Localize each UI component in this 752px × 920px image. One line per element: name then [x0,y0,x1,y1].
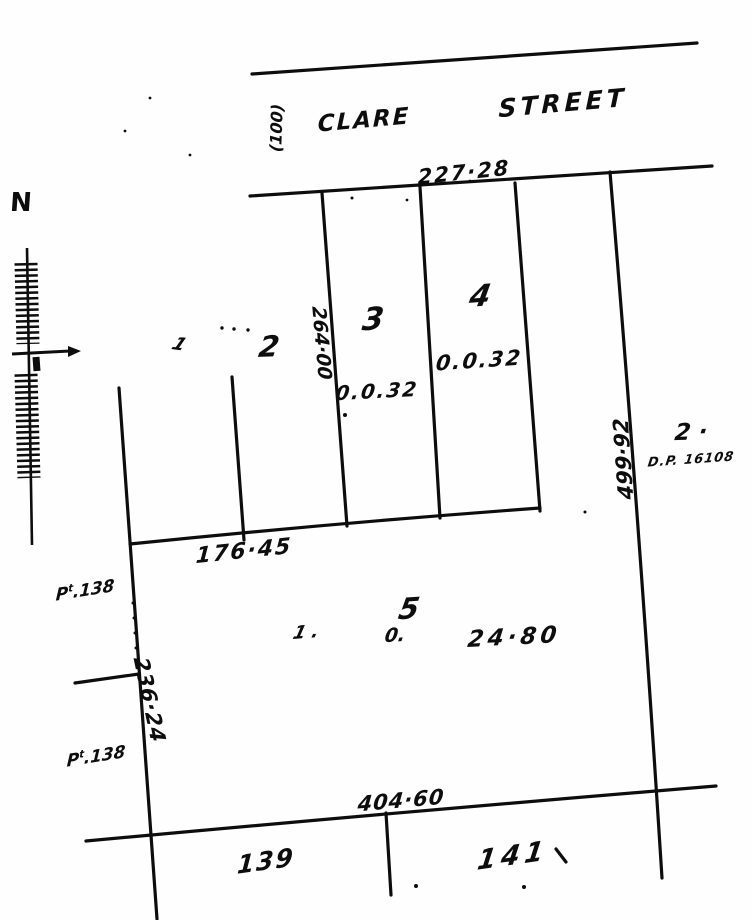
dim-lot-depth: 264·00 [308,306,333,379]
lot-5-area-acres: 1 . [291,623,321,643]
north-arrow-crossbar [12,351,70,354]
plan-linework [0,0,752,920]
lot-5-area-perches: 24·80 [466,624,561,652]
dim-east-side: 499·92 [611,418,638,500]
east-boundary-line [610,172,662,878]
pt138-division-tick [75,674,139,683]
north-arrow-crossbar-tip [68,346,81,357]
lot-5-area-roods: 0. [383,626,406,647]
lot-3-area: 0.0.32 [334,379,419,403]
lot-1-2-boundary [232,377,244,540]
north-arrow-hatch-upper [26,263,28,344]
lot-3-label: 3 [361,304,386,337]
street-width-note: (100) [268,103,286,153]
north-label: N [9,190,33,216]
north-arrow [12,248,81,545]
survey-plan-page: CLARE STREET (100) 227·28 264·00 176·45 … [0,0,752,920]
stray-mark [556,849,566,862]
lot-139-141-boundary [386,813,391,895]
lot-2-label: 2 [257,332,281,362]
lots-back-line [130,508,540,544]
west-boundary-line [119,388,157,919]
clare-street-upper-line [252,43,697,74]
adjoining-lot-2-label: 2 · [673,421,708,445]
north-arrow-collar [36,357,37,371]
